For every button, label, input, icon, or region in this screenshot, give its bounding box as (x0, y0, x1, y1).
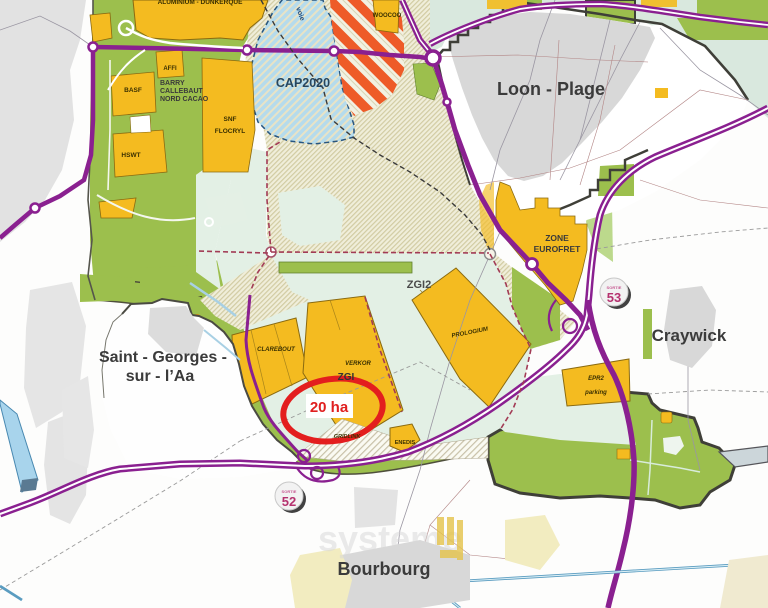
svg-text:parking: parking (584, 390, 607, 396)
svg-text:ZONE: ZONE (545, 233, 569, 243)
svg-text:sur - l’Aa: sur - l’Aa (126, 368, 195, 385)
svg-text:Saint - Georges -: Saint - Georges - (99, 349, 227, 366)
svg-text:ENEDIS: ENEDIS (395, 440, 416, 446)
svg-text:CAP2020: CAP2020 (276, 76, 330, 90)
svg-text:20 ha: 20 ha (310, 399, 349, 416)
svg-text:Bourbourg: Bourbourg (338, 559, 431, 579)
svg-text:Craywick: Craywick (652, 326, 727, 345)
svg-text:GRIDLINK: GRIDLINK (334, 434, 362, 440)
svg-text:FLOCRYL: FLOCRYL (215, 128, 245, 135)
svg-text:HSWT: HSWT (121, 152, 140, 159)
svg-text:Loon - Plage: Loon - Plage (497, 79, 605, 99)
svg-text:WOOCOO: WOOCOO (373, 13, 402, 19)
svg-text:CLAREBOUT: CLAREBOUT (257, 347, 296, 353)
svg-text:ZGI: ZGI (338, 372, 355, 383)
svg-text:SNF: SNF (224, 116, 237, 123)
svg-text:BASF: BASF (124, 87, 142, 94)
svg-text:EUROFRET: EUROFRET (534, 244, 582, 254)
svg-text:CALLEBAUT: CALLEBAUT (160, 88, 203, 95)
svg-text:52: 52 (282, 494, 296, 509)
svg-text:BARRY: BARRY (160, 80, 185, 87)
svg-text:EPR2: EPR2 (588, 376, 604, 382)
svg-text:ALUMINIUM - DUNKERQUE: ALUMINIUM - DUNKERQUE (158, 0, 244, 6)
svg-text:AFFI: AFFI (163, 66, 177, 72)
svg-text:VERKOR: VERKOR (345, 361, 371, 367)
svg-text:NORD CACAO: NORD CACAO (160, 96, 209, 103)
svg-text:53: 53 (607, 290, 621, 305)
svg-text:ZGI2: ZGI2 (407, 279, 431, 291)
